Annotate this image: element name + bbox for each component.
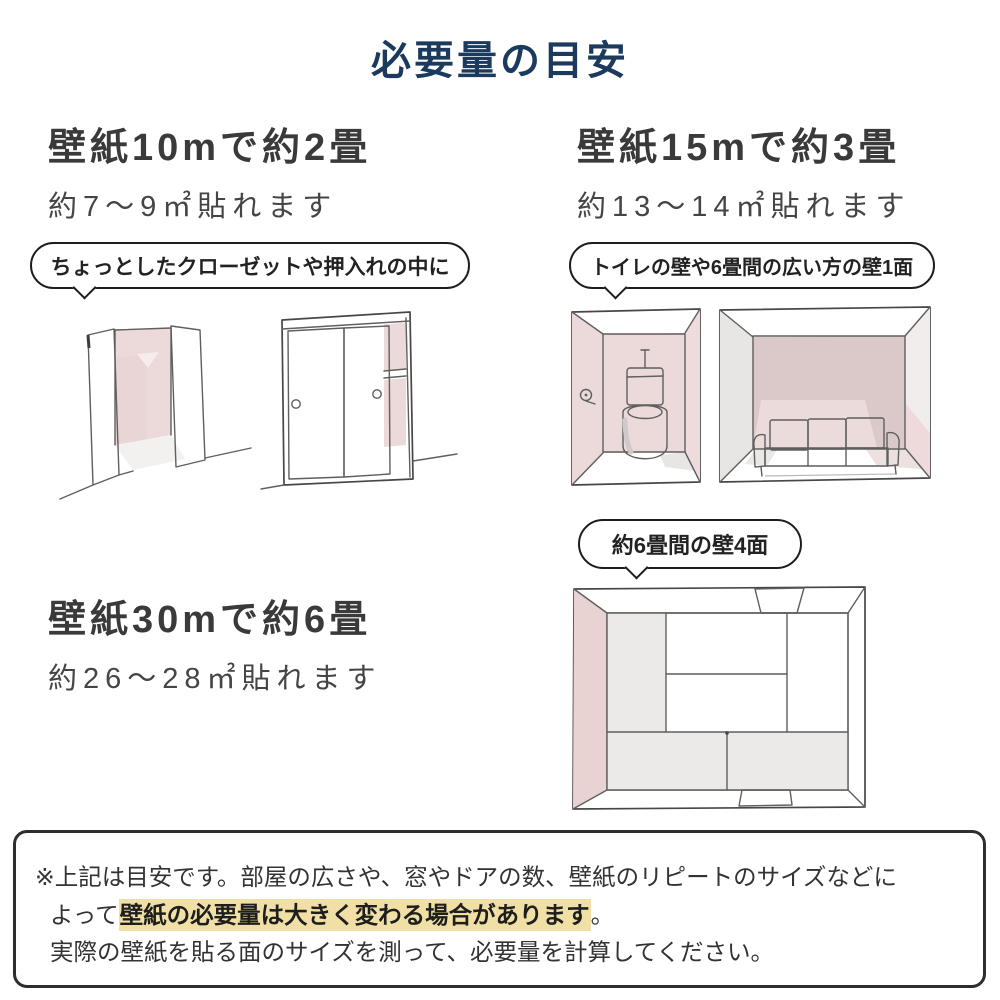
section-15m-bubble-label: トイレの壁や6畳間の広い方の壁1面 [591, 251, 913, 280]
section-10m-subtitle: 約7〜9㎡貼れます [48, 183, 371, 225]
section-10m-bubble-label: ちょっとしたクローゼットや押入れの中に [51, 251, 450, 281]
sofa-room-illustration [720, 307, 930, 482]
section-15m-heading: 壁紙15mで約3畳 [577, 128, 911, 170]
section-15m-subtitle: 約13〜14㎡貼れます [577, 183, 911, 225]
section-30m-subtitle: 約26〜28㎡貼れます [48, 655, 382, 697]
section-30m-speech-bubble: 約6畳間の壁4面 [578, 519, 802, 569]
sliding-closet-illustration [261, 312, 457, 489]
note-line-1: ※上記は目安です。部屋の広さや、窓やドアの数、壁紙のリピートのサイズなどに [35, 859, 965, 897]
room-illustrations [565, 300, 987, 492]
top-door-opening [755, 588, 804, 613]
tatami-room-illustration [568, 583, 868, 811]
note-line-3: 実際の壁紙を貼る面のサイズを測って、必要量を計算してください。 [50, 934, 965, 972]
section-30m: 壁紙30mで約6畳 約26〜28㎡貼れます [48, 600, 382, 697]
note-line-2-prefix: よって [50, 902, 119, 928]
section-10m-heading: 壁紙10mで約2畳 [48, 128, 371, 170]
note-highlighted-text: 壁紙の必要量は大きく変わる場合があります [119, 899, 591, 931]
note-line-2: よって壁紙の必要量は大きく変わる場合があります。 [50, 897, 965, 935]
section-10m: 壁紙10mで約2畳 約7〜9㎡貼れます [48, 128, 371, 225]
section-15m: 壁紙15mで約3畳 約13〜14㎡貼れます [577, 128, 911, 225]
closet-illustrations [55, 298, 470, 523]
section-10m-speech-bubble: ちょっとしたクローゼットや押入れの中に [30, 242, 470, 289]
page-title: 必要量の目安 [0, 28, 1000, 86]
open-closet-illustration [60, 326, 251, 499]
section-15m-speech-bubble: トイレの壁や6畳間の広い方の壁1面 [569, 242, 935, 289]
section-30m-heading: 壁紙30mで約6畳 [48, 600, 382, 642]
note-line-2-suffix: 。 [591, 902, 615, 928]
bottom-door-opening [739, 790, 792, 806]
section-30m-bubble-label: 約6畳間の壁4面 [612, 528, 768, 560]
note-box: ※上記は目安です。部屋の広さや、窓やドアの数、壁紙のリピートのサイズなどに よっ… [13, 830, 986, 988]
toilet-room-illustration [572, 309, 700, 485]
